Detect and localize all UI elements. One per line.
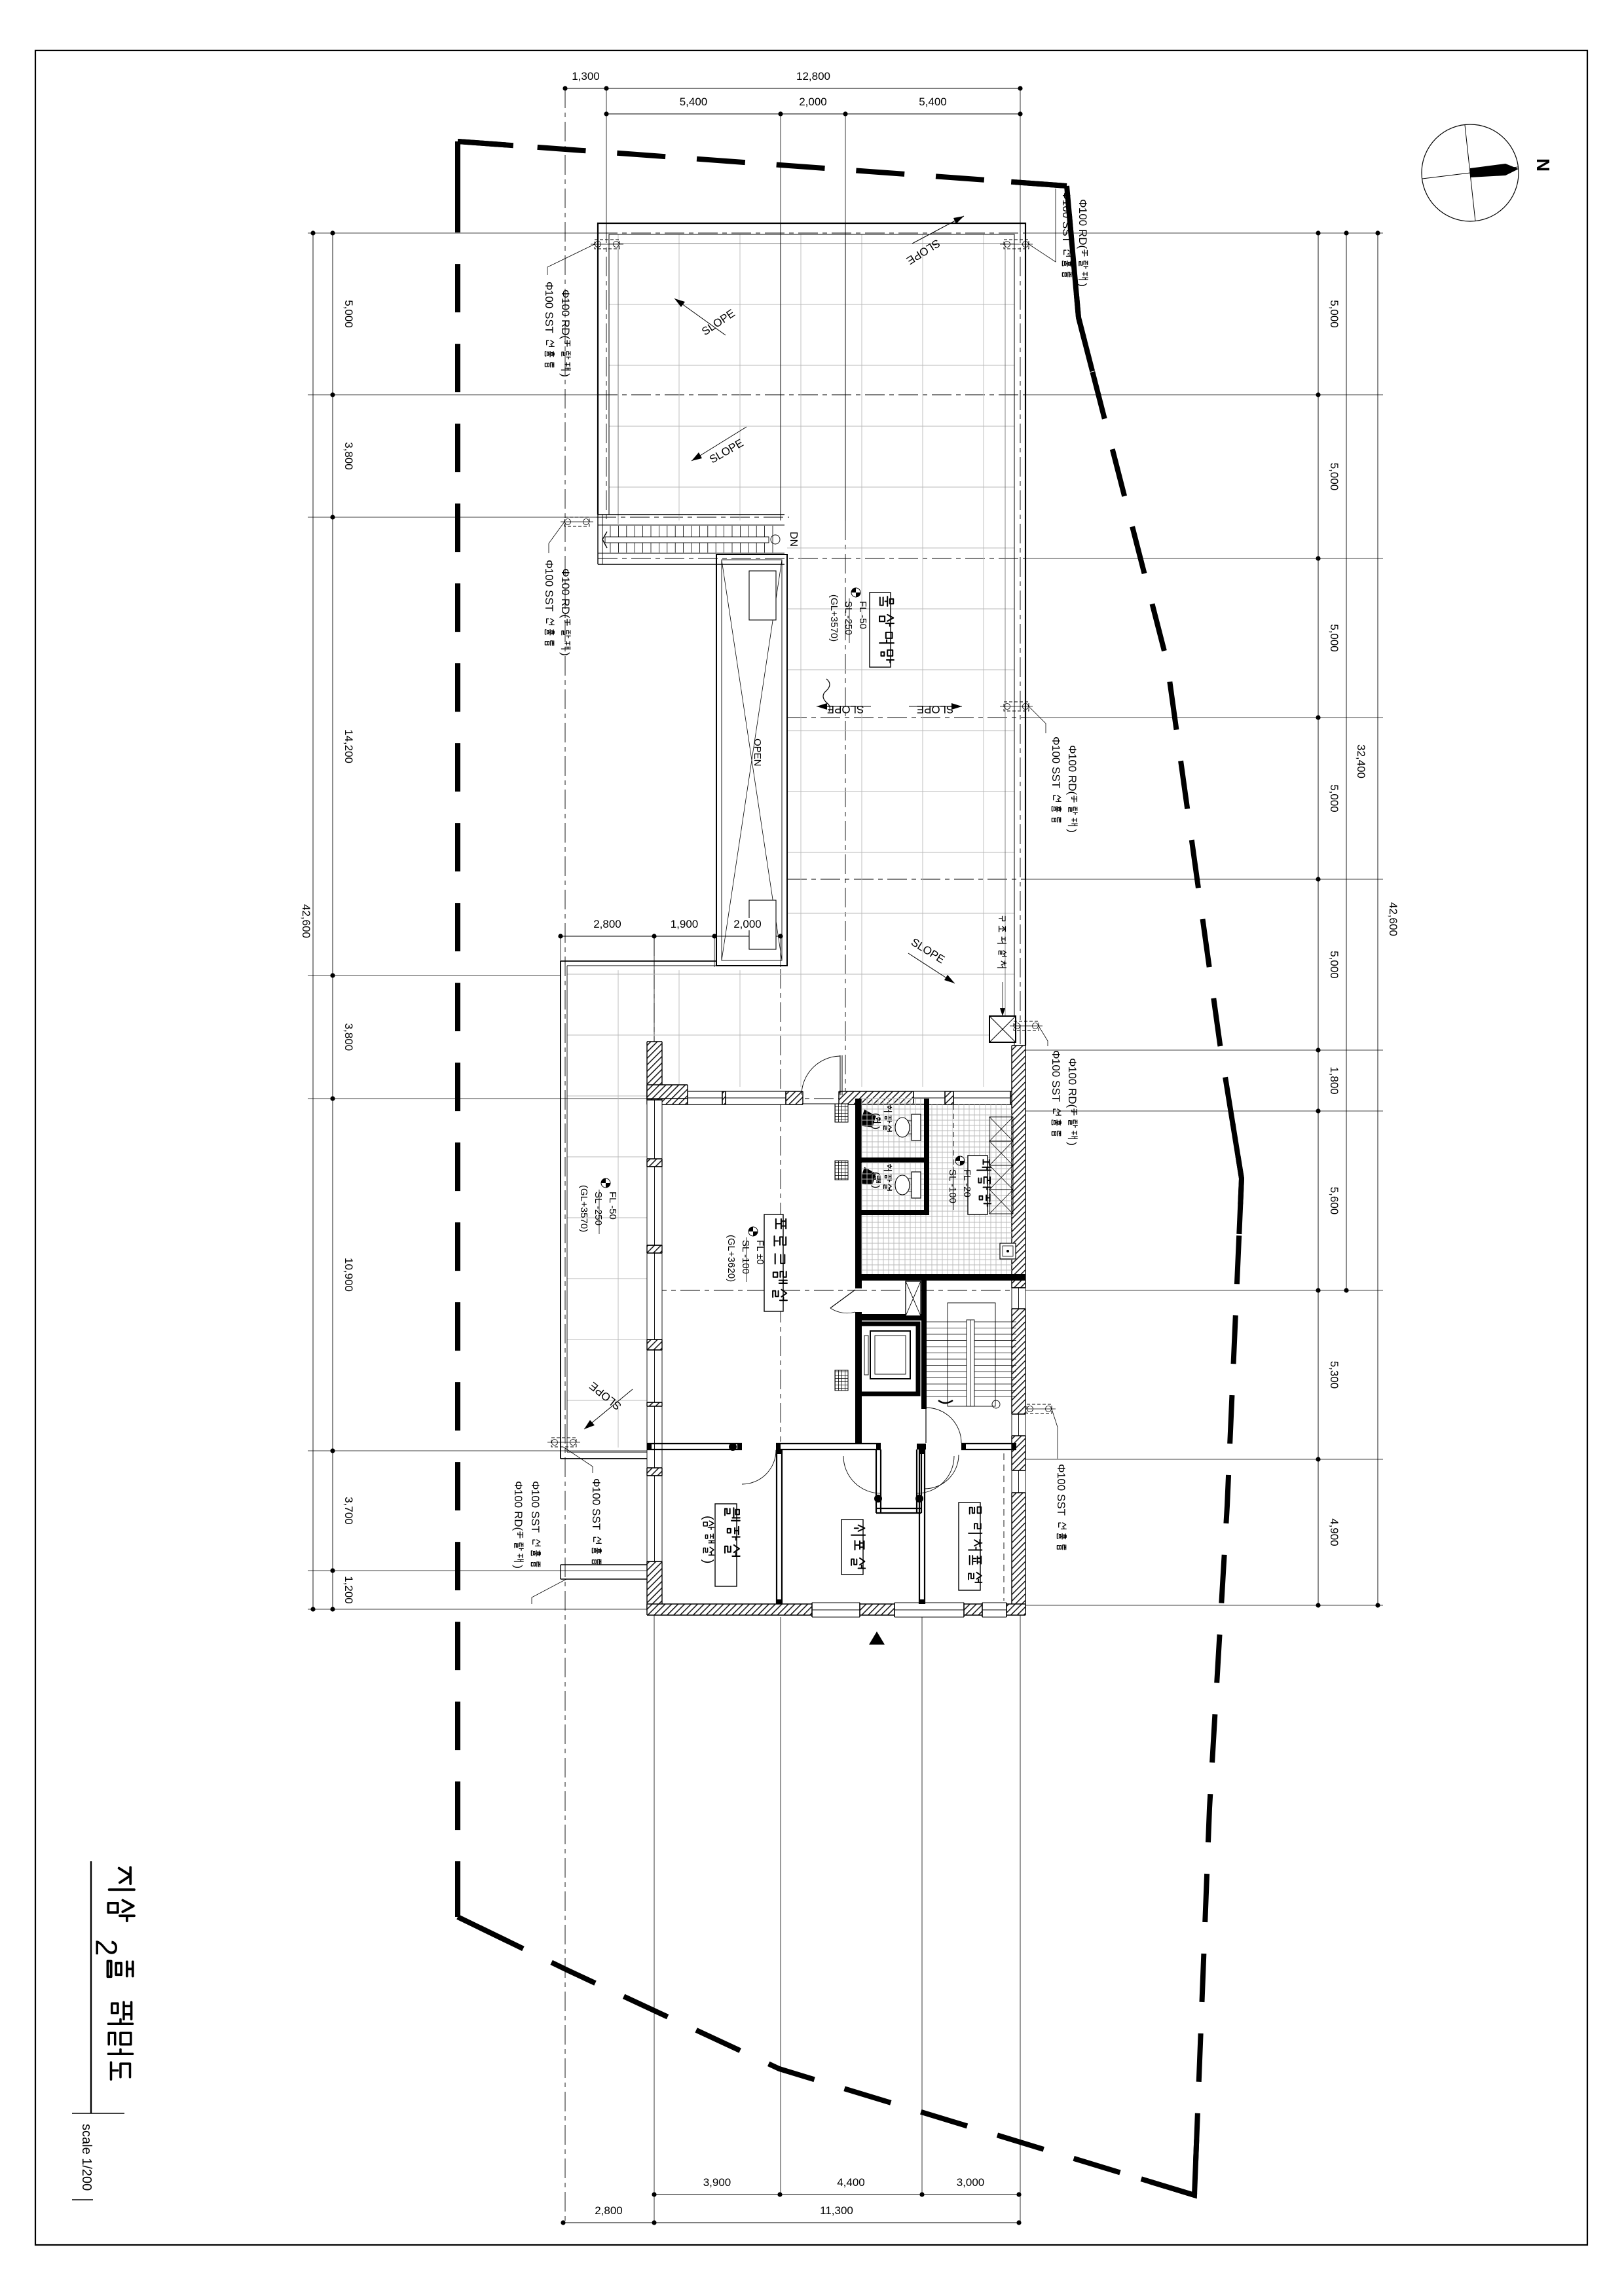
svg-text:100 RD(: 100 RD( xyxy=(512,1489,525,1531)
svg-text:100 SST: 100 SST xyxy=(543,290,555,333)
svg-text:1,200: 1,200 xyxy=(342,1576,355,1604)
svg-text:3,900: 3,900 xyxy=(703,2176,731,2189)
svg-text:3,000: 3,000 xyxy=(957,2176,985,2189)
svg-text:5,000: 5,000 xyxy=(1328,951,1340,979)
svg-text:2,800: 2,800 xyxy=(593,918,621,930)
svg-text:4,900: 4,900 xyxy=(1328,1518,1340,1546)
svg-text:100 RD(: 100 RD( xyxy=(559,298,572,340)
svg-text:3,800: 3,800 xyxy=(342,1023,355,1051)
svg-text:(GL+3620): (GL+3620) xyxy=(726,1235,737,1282)
svg-text:(: ( xyxy=(870,1113,881,1116)
svg-text:): ) xyxy=(559,373,572,377)
svg-text:SL -250: SL -250 xyxy=(593,1192,604,1226)
svg-text:5,000: 5,000 xyxy=(1328,300,1340,328)
svg-text:Φ: Φ xyxy=(512,1481,525,1490)
svg-text:5,000: 5,000 xyxy=(342,300,355,328)
svg-text:Φ: Φ xyxy=(590,1478,602,1487)
svg-text:2,800: 2,800 xyxy=(595,2204,623,2217)
svg-text:scale 1/200: scale 1/200 xyxy=(79,2124,94,2191)
svg-text:1,300: 1,300 xyxy=(572,70,600,82)
svg-text:): ) xyxy=(559,652,572,656)
svg-text:5,300: 5,300 xyxy=(1328,1361,1340,1389)
svg-text:FL ±0: FL ±0 xyxy=(754,1240,766,1265)
svg-text:100 SST: 100 SST xyxy=(590,1487,602,1530)
svg-text:5,400: 5,400 xyxy=(919,96,947,108)
svg-text:5,000: 5,000 xyxy=(1328,624,1340,652)
svg-text:10,900: 10,900 xyxy=(342,1258,355,1292)
svg-text:Φ: Φ xyxy=(543,560,555,569)
svg-text:Φ: Φ xyxy=(1077,199,1089,208)
svg-text:Φ: Φ xyxy=(559,568,572,577)
svg-text:11,300: 11,300 xyxy=(820,2204,853,2217)
svg-text:): ) xyxy=(701,1559,715,1564)
svg-text:5,400: 5,400 xyxy=(680,96,708,108)
svg-text:100 SST: 100 SST xyxy=(1060,200,1073,243)
svg-text:2: 2 xyxy=(89,1939,123,1956)
svg-text:5,600: 5,600 xyxy=(1328,1187,1340,1215)
svg-text:2,000: 2,000 xyxy=(799,96,827,108)
svg-text:Φ: Φ xyxy=(1055,1464,1067,1473)
svg-text:): ) xyxy=(1077,283,1089,287)
svg-text:3,700: 3,700 xyxy=(342,1497,355,1525)
svg-text:42,600: 42,600 xyxy=(300,904,312,938)
svg-text:SLOPE: SLOPE xyxy=(827,703,864,716)
svg-text:): ) xyxy=(870,1185,881,1188)
svg-text:100 SST: 100 SST xyxy=(1055,1472,1067,1516)
svg-text:N: N xyxy=(1533,158,1553,172)
svg-text:5,000: 5,000 xyxy=(1328,784,1340,812)
svg-text:3,800: 3,800 xyxy=(342,442,355,470)
svg-text:DN: DN xyxy=(788,532,799,547)
svg-text:SL -100: SL -100 xyxy=(947,1169,958,1203)
svg-text:Φ: Φ xyxy=(559,289,572,299)
svg-text:100 SST: 100 SST xyxy=(529,1489,542,1533)
svg-text:SLOPE: SLOPE xyxy=(917,703,954,716)
svg-text:Φ: Φ xyxy=(1060,191,1073,200)
svg-text:SL -250: SL -250 xyxy=(843,601,854,635)
svg-text:(GL+3570): (GL+3570) xyxy=(578,1185,589,1232)
svg-text:4,400: 4,400 xyxy=(837,2176,865,2189)
svg-text:OPEN: OPEN xyxy=(752,738,763,767)
svg-text:Φ: Φ xyxy=(1066,745,1079,754)
svg-text:(GL+3570): (GL+3570) xyxy=(828,594,840,642)
svg-text:FL -50: FL -50 xyxy=(857,601,868,629)
svg-text:100 RD(: 100 RD( xyxy=(1066,754,1079,795)
svg-text:5,000: 5,000 xyxy=(1328,463,1340,491)
svg-text:(: ( xyxy=(701,1516,715,1520)
svg-text:32,400: 32,400 xyxy=(1355,744,1367,778)
svg-text:): ) xyxy=(1066,829,1079,833)
svg-text:100 RD(: 100 RD( xyxy=(1077,208,1089,249)
svg-text:): ) xyxy=(1066,1142,1079,1146)
svg-text:100 RD(: 100 RD( xyxy=(559,577,572,619)
svg-text:12,800: 12,800 xyxy=(796,70,830,82)
svg-text:1,800: 1,800 xyxy=(1328,1066,1340,1095)
svg-text:2,000: 2,000 xyxy=(733,918,762,930)
svg-text:(: ( xyxy=(870,1172,881,1175)
svg-text:Φ: Φ xyxy=(543,282,555,291)
svg-text:): ) xyxy=(870,1126,881,1129)
svg-text:1,900: 1,900 xyxy=(671,918,699,930)
svg-text:FL -20: FL -20 xyxy=(961,1169,972,1197)
svg-text:42,600: 42,600 xyxy=(1387,902,1399,936)
svg-text:100 RD(: 100 RD( xyxy=(1066,1066,1079,1108)
svg-text:100 SST: 100 SST xyxy=(1050,1059,1062,1102)
svg-text:Φ: Φ xyxy=(1050,1050,1062,1059)
svg-text:Φ: Φ xyxy=(1050,737,1062,746)
svg-text:Φ: Φ xyxy=(1066,1058,1079,1067)
svg-text:14,200: 14,200 xyxy=(342,729,355,763)
svg-text:Φ: Φ xyxy=(529,1481,542,1490)
svg-text:): ) xyxy=(512,1565,525,1569)
svg-text:100 SST: 100 SST xyxy=(543,568,555,611)
svg-text:FL -50: FL -50 xyxy=(607,1192,618,1220)
svg-text:100 SST: 100 SST xyxy=(1050,745,1062,788)
svg-text:SL -100: SL -100 xyxy=(740,1240,751,1274)
